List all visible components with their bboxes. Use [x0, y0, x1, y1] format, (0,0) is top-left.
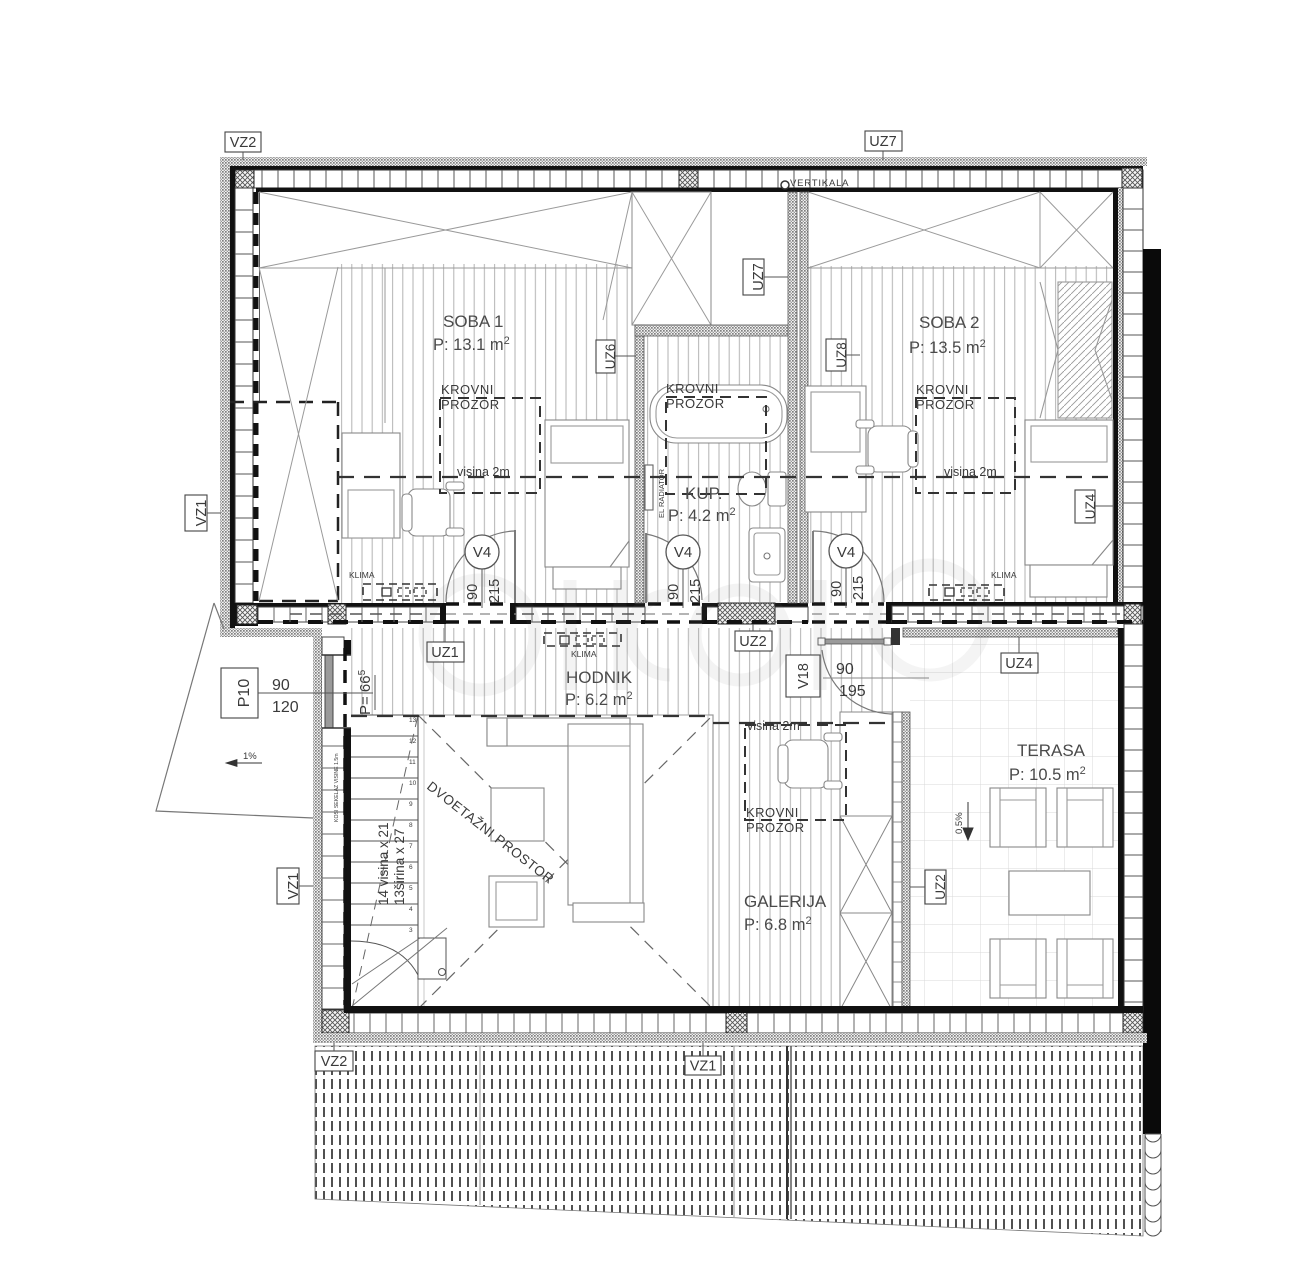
svg-text:KROVNI: KROVNI	[666, 381, 719, 396]
svg-text:195: 195	[839, 683, 866, 700]
svg-text:P: 6.8 m2: P: 6.8 m2	[744, 915, 812, 934]
svg-text:UZ7: UZ7	[869, 134, 896, 150]
svg-text:90: 90	[829, 581, 845, 597]
svg-text:KROVNI: KROVNI	[916, 382, 969, 397]
svg-text:VZ2: VZ2	[230, 135, 257, 151]
svg-text:120: 120	[272, 699, 299, 716]
svg-text:90: 90	[272, 677, 290, 694]
svg-text:V18: V18	[796, 663, 812, 689]
svg-text:PROZOR: PROZOR	[441, 397, 500, 412]
svg-text:SOBA 2: SOBA 2	[919, 313, 979, 332]
svg-text:TERASA: TERASA	[1017, 741, 1086, 760]
svg-text:1%: 1%	[243, 751, 257, 762]
svg-text:14 visina x 21: 14 visina x 21	[376, 822, 391, 905]
svg-text:10: 10	[409, 780, 417, 787]
svg-text:VERTIKALA: VERTIKALA	[790, 178, 849, 189]
svg-text:215: 215	[851, 576, 867, 600]
svg-text:KUP.: KUP.	[685, 484, 723, 503]
svg-text:visina 2m: visina 2m	[747, 719, 800, 733]
svg-text:UZ4: UZ4	[1005, 656, 1032, 672]
svg-text:VZ1: VZ1	[690, 1059, 717, 1075]
svg-text:SOBA 1: SOBA 1	[443, 312, 503, 331]
svg-text:6: 6	[409, 864, 413, 871]
svg-text:90: 90	[836, 661, 854, 678]
svg-text:KLIMA: KLIMA	[349, 570, 375, 580]
svg-text:P: 6.2 m2: P: 6.2 m2	[565, 690, 633, 709]
svg-text:PROZOR: PROZOR	[916, 397, 975, 412]
svg-text:V4: V4	[837, 544, 855, 561]
svg-text:P: 4.2 m2: P: 4.2 m2	[668, 506, 736, 525]
svg-text:KROVNI: KROVNI	[441, 382, 494, 397]
svg-text:13širina x 27: 13širina x 27	[392, 828, 407, 905]
svg-text:UZ2: UZ2	[933, 874, 948, 900]
svg-text:215: 215	[688, 579, 704, 603]
svg-text:P: 10.5 m2: P: 10.5 m2	[1009, 765, 1086, 784]
svg-text:P: 13.1 m2: P: 13.1 m2	[433, 335, 510, 354]
svg-text:13: 13	[409, 717, 417, 724]
svg-text:9: 9	[409, 801, 413, 808]
svg-text:4: 4	[409, 906, 413, 913]
svg-text:PROZOR: PROZOR	[746, 820, 805, 835]
svg-text:3: 3	[409, 927, 413, 934]
svg-text:KROVNI: KROVNI	[746, 805, 799, 820]
svg-text:P10: P10	[236, 679, 253, 708]
svg-text:7: 7	[409, 843, 413, 850]
svg-text:KOSI SEKELAZ VISINE 1.5m: KOSI SEKELAZ VISINE 1.5m	[334, 753, 340, 822]
svg-text:KLIMA: KLIMA	[991, 570, 1017, 580]
svg-text:P: 13.5 m2: P: 13.5 m2	[909, 338, 986, 357]
svg-text:visina 2m: visina 2m	[944, 465, 997, 479]
svg-text:GALERIJA: GALERIJA	[744, 892, 827, 911]
svg-text:V4: V4	[473, 544, 491, 561]
svg-text:P= 665: P= 665	[357, 669, 374, 715]
svg-text:8: 8	[409, 822, 413, 829]
svg-text:V4: V4	[674, 544, 692, 561]
svg-text:EL RADIATOR: EL RADIATOR	[657, 468, 666, 518]
svg-text:visina 2m: visina 2m	[457, 465, 510, 479]
svg-text:0.5%: 0.5%	[954, 812, 965, 834]
svg-text:11: 11	[409, 759, 416, 766]
svg-text:UZ2: UZ2	[739, 634, 766, 650]
svg-text:5: 5	[409, 885, 413, 892]
svg-text:VZ2: VZ2	[321, 1054, 348, 1070]
svg-text:PROZOR: PROZOR	[666, 396, 725, 411]
